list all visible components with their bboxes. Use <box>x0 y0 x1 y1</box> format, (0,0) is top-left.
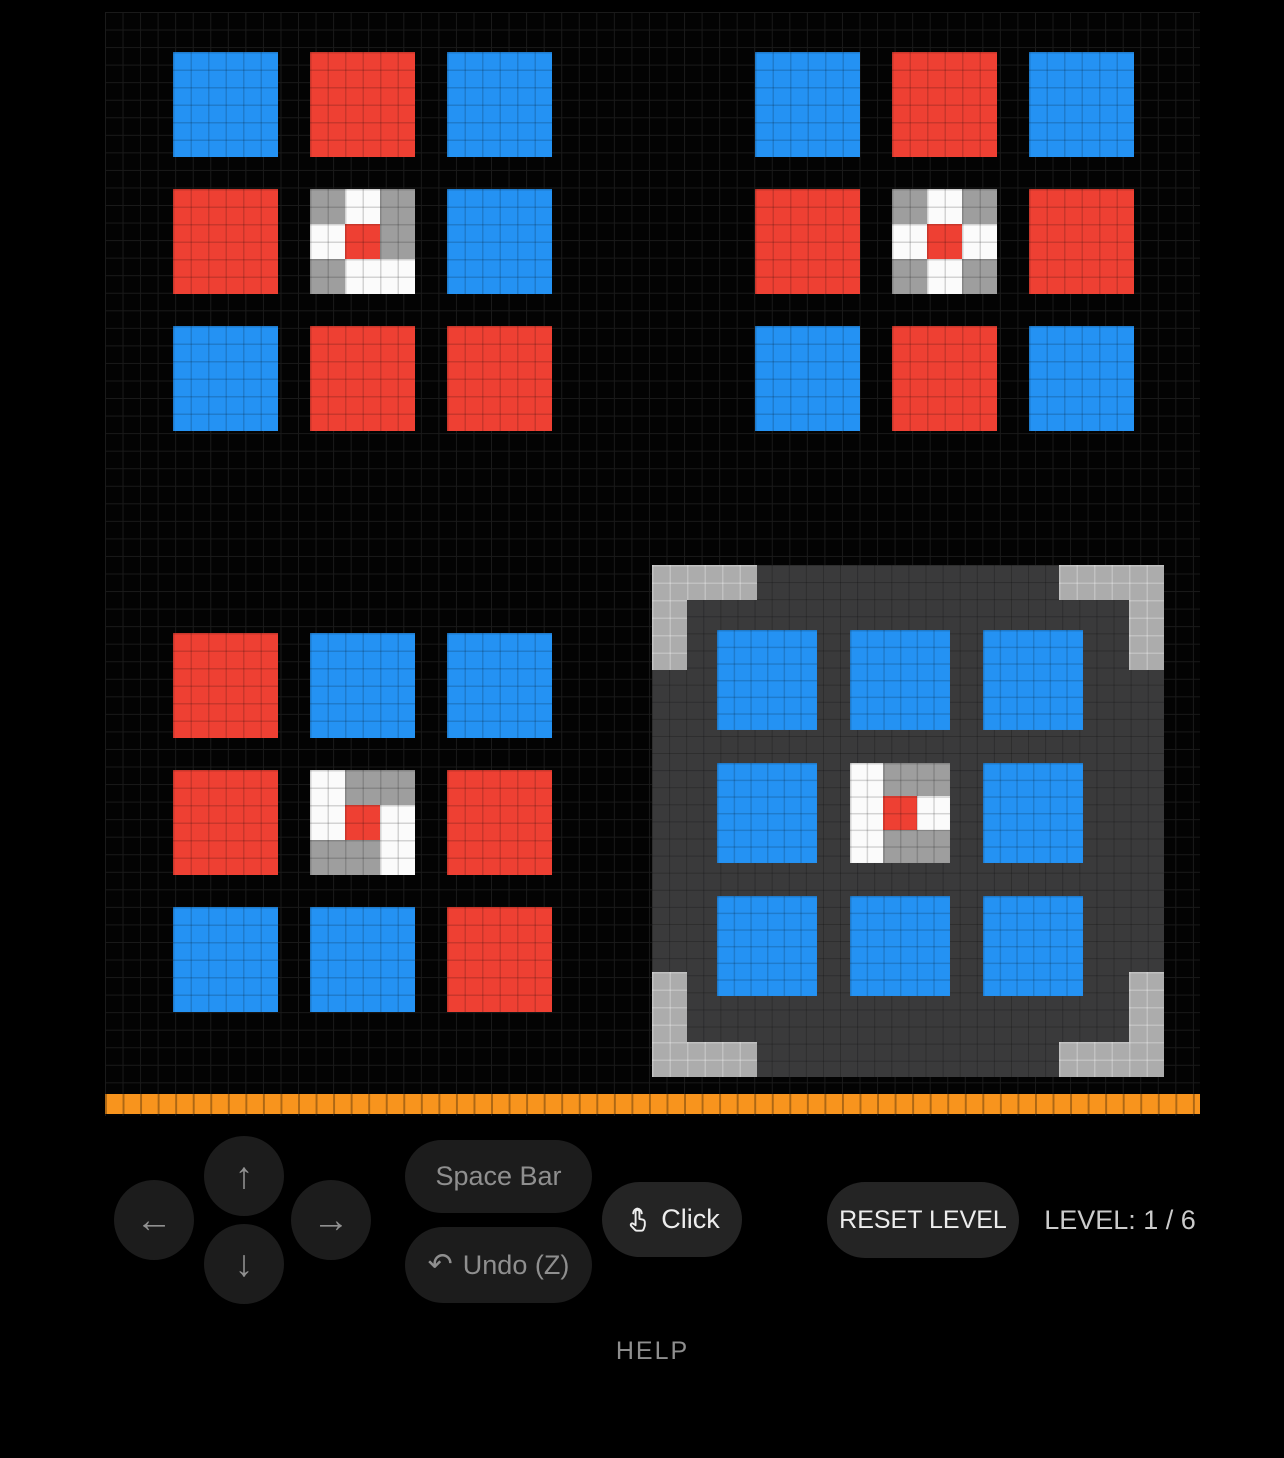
tile-blue <box>173 907 278 1012</box>
tile-blue[interactable] <box>717 763 817 863</box>
spinner-center <box>883 796 916 829</box>
spinner-block <box>310 259 345 294</box>
undo-button[interactable]: ↶ Undo (Z) <box>405 1227 592 1303</box>
playfield <box>105 12 1200 1116</box>
tile-blue <box>755 52 860 157</box>
pattern-board-bottom-left <box>173 633 552 1012</box>
tile-blue <box>447 52 552 157</box>
tile-blue <box>755 326 860 431</box>
click-button[interactable]: Click <box>602 1182 742 1257</box>
spinner-block <box>917 796 950 829</box>
spinner-block <box>850 830 883 863</box>
down-arrow-icon: ↓ <box>235 1224 254 1304</box>
spinner-block <box>883 763 916 796</box>
pattern-board-top-left <box>173 52 552 431</box>
right-arrow-icon: → <box>313 1180 350 1260</box>
spinner-tile <box>310 189 415 294</box>
spinner-block <box>380 189 415 224</box>
tile-red <box>173 770 278 875</box>
tile-blue <box>447 633 552 738</box>
space-bar-button[interactable]: Space Bar <box>405 1140 592 1213</box>
spinner-block <box>927 189 962 224</box>
spinner-block <box>850 763 883 796</box>
tile-blue <box>173 326 278 431</box>
tile-blue <box>310 633 415 738</box>
tile-red <box>310 52 415 157</box>
spinner-block <box>380 805 415 840</box>
spinner-center <box>345 805 380 840</box>
main-board <box>717 630 1083 996</box>
tap-hand-icon <box>624 1206 651 1233</box>
tile-red <box>447 907 552 1012</box>
up-arrow-icon: ↑ <box>235 1136 254 1216</box>
left-arrow-icon: ← <box>136 1180 173 1260</box>
spinner-block <box>962 189 997 224</box>
spinner-block <box>380 840 415 875</box>
tile-red <box>447 770 552 875</box>
tile-red <box>1029 189 1134 294</box>
spinner-block <box>892 224 927 259</box>
tile-red <box>892 326 997 431</box>
undo-arrow-icon: ↶ <box>428 1250 453 1280</box>
tile-red <box>892 52 997 157</box>
reset-level-button[interactable]: RESET LEVEL <box>827 1182 1019 1258</box>
tile-red <box>310 326 415 431</box>
spinner-block <box>962 224 997 259</box>
spinner-block <box>892 259 927 294</box>
move-up-button[interactable]: ↑ <box>204 1136 284 1216</box>
move-right-button[interactable]: → <box>291 1180 371 1260</box>
spinner-block <box>345 189 380 224</box>
spinner-block <box>962 259 997 294</box>
tile-blue <box>447 189 552 294</box>
tile-blue <box>1029 52 1134 157</box>
spinner-block <box>927 259 962 294</box>
tile-blue <box>173 52 278 157</box>
tile-blue[interactable] <box>983 763 1083 863</box>
spinner-block <box>917 763 950 796</box>
tile-blue[interactable] <box>983 630 1083 730</box>
spinner-tile <box>892 189 997 294</box>
spinner-block <box>310 189 345 224</box>
tile-blue <box>1029 326 1134 431</box>
spinner-block <box>380 224 415 259</box>
spinner-block <box>345 770 380 805</box>
tile-red <box>173 189 278 294</box>
spinner-tile[interactable] <box>850 763 950 863</box>
main-board-panel <box>652 565 1164 1077</box>
goal-bar <box>105 1094 1200 1114</box>
spinner-tile <box>310 770 415 875</box>
spinner-block <box>380 770 415 805</box>
spinner-block <box>380 259 415 294</box>
level-indicator: LEVEL: 1 / 6 <box>1040 1205 1200 1236</box>
tile-red <box>447 326 552 431</box>
spinner-block <box>310 805 345 840</box>
spinner-block <box>883 830 916 863</box>
spinner-block <box>345 840 380 875</box>
pattern-board-top-right <box>755 52 1134 431</box>
move-down-button[interactable]: ↓ <box>204 1224 284 1304</box>
spinner-center <box>345 224 380 259</box>
spinner-block <box>917 830 950 863</box>
tile-blue[interactable] <box>717 630 817 730</box>
tile-blue[interactable] <box>850 896 950 996</box>
tile-blue[interactable] <box>983 896 1083 996</box>
game-screen: ↑ ← → ↓ Space Bar ↶ Undo (Z) Click RESET… <box>0 0 1284 1458</box>
help-link[interactable]: HELP <box>105 1337 1200 1366</box>
tile-red <box>173 633 278 738</box>
spinner-block <box>850 796 883 829</box>
spinner-block <box>345 259 380 294</box>
tile-blue <box>310 907 415 1012</box>
spinner-block <box>892 189 927 224</box>
spinner-block <box>310 840 345 875</box>
move-left-button[interactable]: ← <box>114 1180 194 1260</box>
spinner-block <box>310 224 345 259</box>
spinner-block <box>310 770 345 805</box>
tile-blue[interactable] <box>850 630 950 730</box>
tile-red <box>755 189 860 294</box>
tile-blue[interactable] <box>717 896 817 996</box>
spinner-center <box>927 224 962 259</box>
